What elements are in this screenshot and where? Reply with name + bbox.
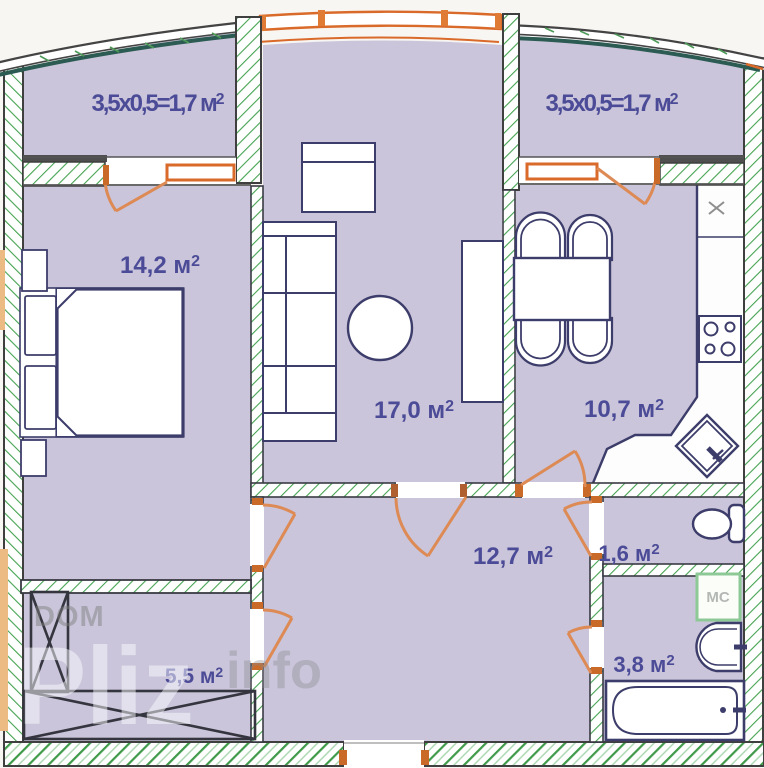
svg-text:12,7 м2: 12,7 м2: [473, 543, 553, 570]
svg-text:14,2 м2: 14,2 м2: [120, 252, 200, 279]
svg-text:МС: МС: [706, 589, 729, 606]
svg-text:3,5x0,5=1,7 м2: 3,5x0,5=1,7 м2: [92, 90, 225, 117]
svg-text:17,0 м2: 17,0 м2: [374, 397, 454, 424]
svg-text:3,8 м2: 3,8 м2: [613, 652, 674, 677]
svg-text:10,7 м2: 10,7 м2: [584, 396, 664, 423]
svg-text:info: info: [226, 642, 322, 700]
svg-text:1,6 м2: 1,6 м2: [598, 541, 659, 566]
svg-text:Pliz: Pliz: [18, 625, 194, 748]
svg-text:3,5x0,5=1,7 м2: 3,5x0,5=1,7 м2: [546, 90, 679, 117]
